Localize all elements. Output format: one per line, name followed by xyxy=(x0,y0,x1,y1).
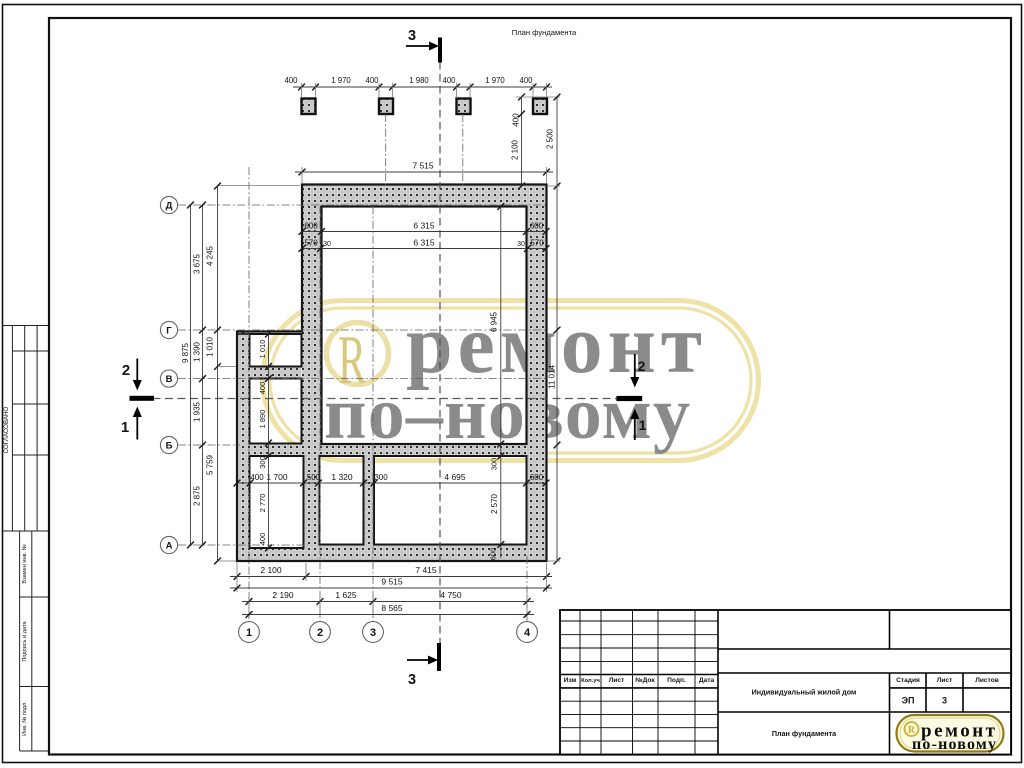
svg-text:2 770: 2 770 xyxy=(258,494,267,513)
svg-text:2 100: 2 100 xyxy=(511,139,520,160)
svg-text:300: 300 xyxy=(374,473,388,482)
svg-text:6 945: 6 945 xyxy=(490,311,499,332)
svg-text:1 980: 1 980 xyxy=(409,76,429,85)
svg-text:3: 3 xyxy=(942,696,947,706)
svg-text:1 390: 1 390 xyxy=(193,341,202,362)
svg-text:4: 4 xyxy=(524,627,531,639)
svg-text:570: 570 xyxy=(304,239,318,248)
svg-text:3: 3 xyxy=(370,627,376,639)
svg-text:1 970: 1 970 xyxy=(485,76,505,85)
svg-text:2: 2 xyxy=(317,627,323,639)
svg-text:№Док: №Док xyxy=(635,677,655,684)
svg-text:План фундамента: План фундамента xyxy=(512,28,577,37)
svg-text:1 010: 1 010 xyxy=(206,336,215,357)
svg-text:400: 400 xyxy=(365,76,379,85)
svg-text:1: 1 xyxy=(639,417,647,433)
svg-text:2: 2 xyxy=(122,362,130,379)
svg-text:400: 400 xyxy=(250,473,264,482)
svg-text:Индивидуальный жилой дом: Индивидуальный жилой дом xyxy=(752,688,857,697)
svg-text:8 565: 8 565 xyxy=(381,603,403,613)
svg-text:570: 570 xyxy=(530,239,544,248)
svg-text:3: 3 xyxy=(408,28,416,44)
svg-text:7 415: 7 415 xyxy=(415,565,437,575)
svg-text:600: 600 xyxy=(489,548,498,561)
svg-text:1 700: 1 700 xyxy=(266,472,288,482)
svg-text:Подпись и дата: Подпись и дата xyxy=(22,620,28,661)
svg-text:600: 600 xyxy=(530,473,544,482)
svg-text:Инв. № подл.: Инв. № подл. xyxy=(22,701,28,736)
svg-text:Г: Г xyxy=(166,325,172,336)
svg-text:7 515: 7 515 xyxy=(412,161,434,171)
svg-text:Взамен инв. №: Взамен инв. № xyxy=(22,544,28,583)
svg-text:2: 2 xyxy=(638,358,646,374)
svg-text:СОГЛАСОВАНО: СОГЛАСОВАНО xyxy=(3,406,10,453)
svg-text:4 695: 4 695 xyxy=(444,472,466,482)
svg-text:1 625: 1 625 xyxy=(335,590,357,600)
svg-text:300: 300 xyxy=(258,456,267,469)
svg-text:400: 400 xyxy=(258,382,267,395)
svg-text:400: 400 xyxy=(512,113,521,127)
svg-text:Стадия: Стадия xyxy=(896,677,920,684)
svg-text:1: 1 xyxy=(121,419,129,436)
svg-text:3 675: 3 675 xyxy=(193,253,202,274)
svg-text:4 750: 4 750 xyxy=(440,590,462,600)
svg-text:600: 600 xyxy=(304,222,318,231)
svg-text:400: 400 xyxy=(519,76,533,85)
svg-text:по‑новому: по‑новому xyxy=(912,736,996,753)
svg-text:2 100: 2 100 xyxy=(260,565,282,575)
svg-text:Б: Б xyxy=(166,440,173,451)
svg-text:600: 600 xyxy=(530,222,544,231)
svg-text:Д: Д xyxy=(166,200,173,211)
svg-text:400: 400 xyxy=(442,76,456,85)
svg-text:500: 500 xyxy=(307,473,321,482)
svg-text:1 890: 1 890 xyxy=(258,410,267,429)
svg-text:400: 400 xyxy=(284,76,298,85)
svg-text:1: 1 xyxy=(246,627,252,639)
svg-text:4 245: 4 245 xyxy=(206,245,215,266)
svg-text:1 970: 1 970 xyxy=(331,76,351,85)
svg-text:30: 30 xyxy=(323,241,331,248)
svg-text:5 759: 5 759 xyxy=(206,454,215,475)
svg-text:План фундамента: План фундамента xyxy=(772,729,837,738)
svg-text:30: 30 xyxy=(517,241,525,248)
svg-text:2 570: 2 570 xyxy=(490,493,499,514)
svg-text:В: В xyxy=(166,374,173,385)
svg-text:1 320: 1 320 xyxy=(331,472,353,482)
svg-text:9 515: 9 515 xyxy=(381,577,403,587)
svg-text:1 010: 1 010 xyxy=(258,340,267,359)
svg-text:2 500: 2 500 xyxy=(546,128,555,149)
svg-text:400: 400 xyxy=(258,533,267,546)
svg-text:Листов: Листов xyxy=(975,677,999,684)
svg-text:R: R xyxy=(908,725,916,736)
svg-text:ЭП: ЭП xyxy=(902,696,915,706)
svg-text:Подп.: Подп. xyxy=(667,677,686,684)
svg-text:6 315: 6 315 xyxy=(413,238,435,248)
svg-text:Лист: Лист xyxy=(609,677,625,684)
svg-text:3: 3 xyxy=(408,672,416,688)
svg-text:Кол.уч: Кол.уч xyxy=(581,678,600,684)
svg-text:Лист: Лист xyxy=(937,677,953,684)
svg-text:Дата: Дата xyxy=(699,677,715,684)
svg-text:Изм: Изм xyxy=(564,677,577,684)
svg-text:2 190: 2 190 xyxy=(272,590,294,600)
svg-text:9 875: 9 875 xyxy=(181,342,190,363)
svg-text:6 315: 6 315 xyxy=(413,221,435,231)
svg-text:А: А xyxy=(166,540,173,551)
svg-text:11 014: 11 014 xyxy=(548,365,557,389)
svg-text:2 875: 2 875 xyxy=(193,485,202,506)
svg-text:300: 300 xyxy=(490,458,499,471)
svg-text:1 935: 1 935 xyxy=(193,401,202,422)
